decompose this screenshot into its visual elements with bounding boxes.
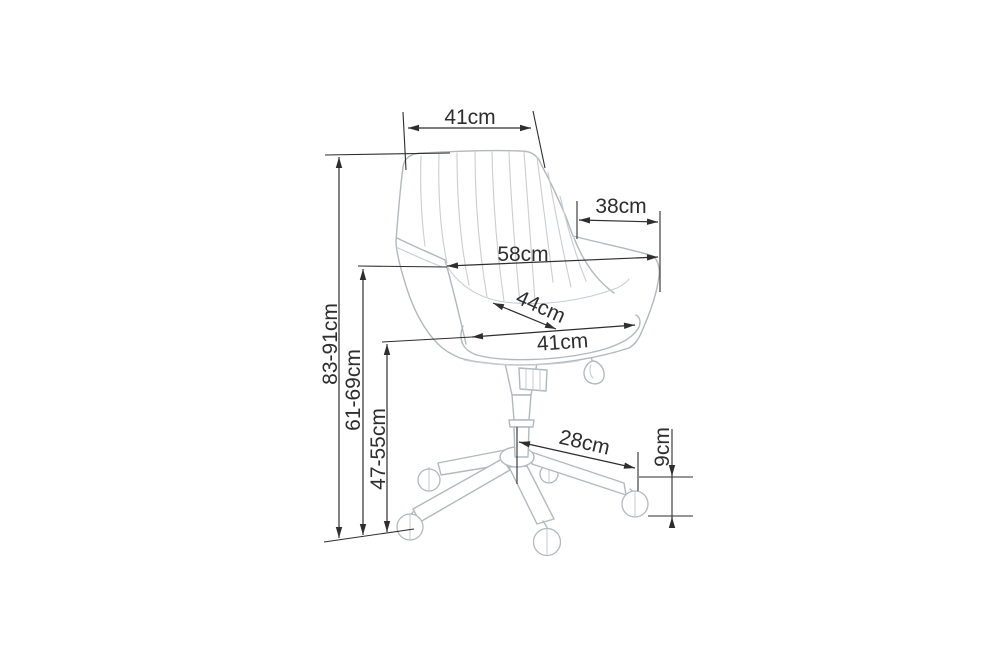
dim-label-armrest-depth: 38cm [595, 195, 646, 218]
dim-label-seat-width: 41cm [536, 329, 589, 356]
dim-label-armrest-height: 61-69cm [342, 349, 365, 431]
chair-base [397, 447, 648, 556]
chair-dimension-diagram: 83-91cm 61-69cm 47-55cm 41cm [0, 0, 1000, 667]
gas-lift-flange [509, 420, 534, 427]
dimension-seat-height: 47-55cm [367, 337, 472, 532]
gas-lift-mid [512, 395, 531, 420]
dimension-caster-height: 9cm [639, 427, 693, 527]
dim-label-base-arm-reach: 28cm [557, 426, 612, 460]
dim-label-backrest-top-width: 41cm [444, 106, 495, 129]
dim-label-seat-height: 47-55cm [367, 408, 390, 490]
dim-label-overall-width: 58cm [497, 243, 548, 266]
dim-label-caster-height: 9cm [651, 427, 674, 467]
adjustment-lever [584, 361, 604, 384]
diagram-svg: 83-91cm 61-69cm 47-55cm 41cm [0, 0, 1000, 667]
dim-label-overall-height: 83-91cm [319, 303, 342, 385]
